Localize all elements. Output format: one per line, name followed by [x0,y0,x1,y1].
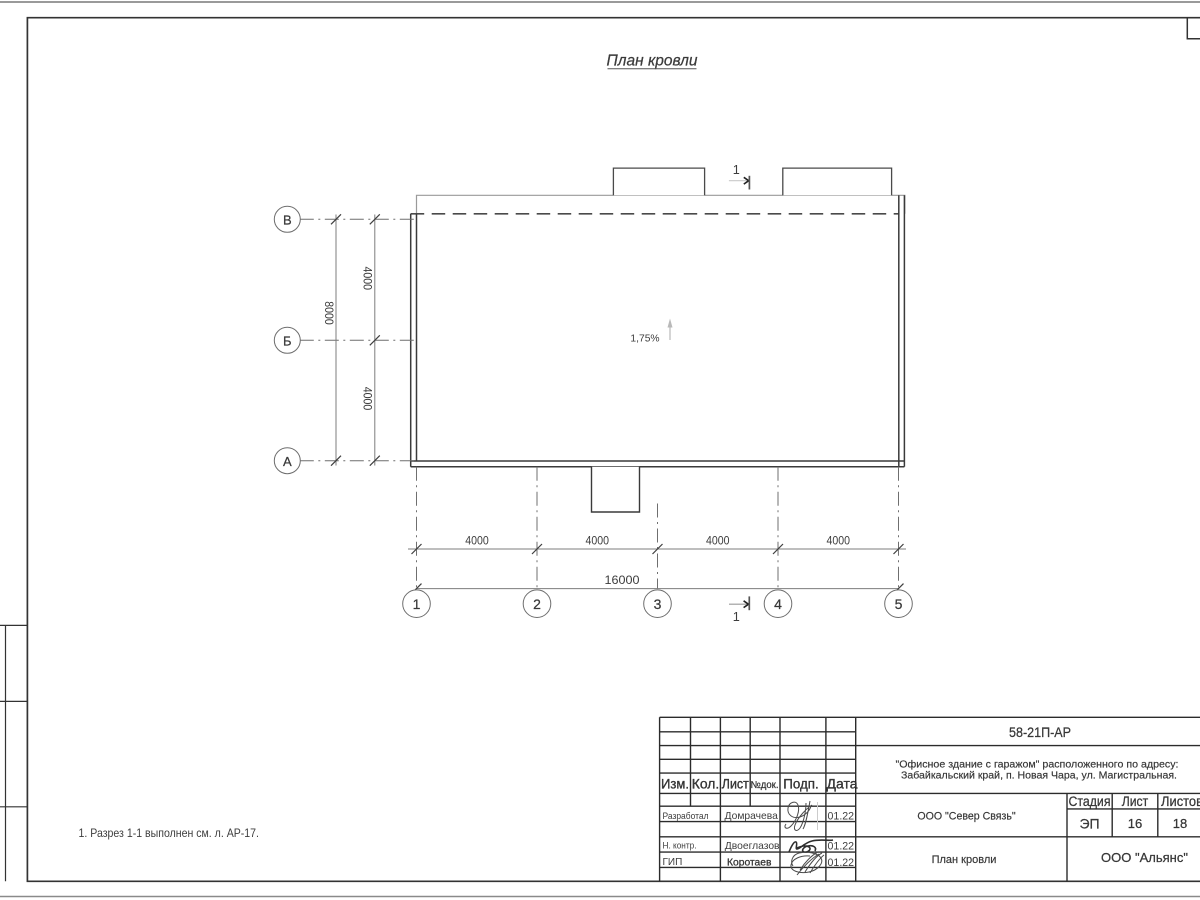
svg-text:1,75%: 1,75% [630,334,659,345]
svg-text:Н. контр.: Н. контр. [663,841,697,852]
svg-text:Лист: Лист [1122,794,1149,809]
svg-text:18: 18 [1173,816,1187,831]
svg-text:А: А [283,454,292,469]
svg-text:4000: 4000 [827,534,851,548]
svg-text:Изм.: Изм. [661,776,689,792]
svg-text:Разработал: Разработал [663,811,709,822]
svg-text:Коротаев: Коротаев [727,857,772,868]
svg-text:В: В [283,212,292,227]
svg-text:План кровли: План кровли [932,854,997,866]
svg-text:Подп.: Подп. [783,776,819,792]
svg-text:Б: Б [283,333,292,348]
svg-text:01.22: 01.22 [828,840,855,852]
svg-text:1: 1 [733,163,740,177]
svg-text:5: 5 [895,596,903,612]
svg-text:Дата: Дата [827,776,858,792]
svg-text:58-21П-АР: 58-21П-АР [1009,725,1071,740]
svg-text:Двоеглазов: Двоеглазов [725,841,780,852]
svg-text:16: 16 [1128,816,1142,831]
svg-text:1. Разрез 1-1 выполнен см. л.: 1. Разрез 1-1 выполнен см. л. АР-17. [79,827,260,840]
svg-text:16000: 16000 [605,573,640,587]
svg-text:4000: 4000 [360,267,374,291]
svg-text:01.22: 01.22 [828,811,855,823]
svg-text:4: 4 [774,596,782,612]
svg-text:ГИП: ГИП [663,857,683,868]
svg-text:Забайкальский край, п. Новая Ч: Забайкальский край, п. Новая Чара, ул. М… [901,770,1177,782]
svg-text:8000: 8000 [322,301,336,325]
svg-text:1: 1 [733,610,740,624]
svg-text:ООО "Альянс": ООО "Альянс" [1101,850,1188,865]
svg-text:3: 3 [654,596,662,612]
svg-text:Стадия: Стадия [1069,794,1111,809]
svg-text:2: 2 [533,596,541,612]
svg-text:4000: 4000 [360,387,374,411]
svg-text:4000: 4000 [706,534,730,548]
svg-text:4000: 4000 [586,534,610,548]
svg-text:№док.: №док. [751,780,779,791]
svg-text:01.22: 01.22 [828,857,855,869]
svg-text:"Офисное здание с гаражом" рас: "Офисное здание с гаражом" расположенног… [896,758,1179,770]
svg-text:План кровли: План кровли [607,53,698,70]
svg-text:Лист: Лист [722,776,750,792]
svg-text:Кол.: Кол. [692,776,720,792]
svg-text:1: 1 [413,596,421,612]
svg-text:Листов: Листов [1161,794,1200,809]
svg-text:ЭП: ЭП [1079,816,1099,832]
svg-text:ООО "Север Связь": ООО "Север Связь" [917,810,1015,822]
svg-text:4000: 4000 [465,534,489,548]
svg-text:Домрачева: Домрачева [725,811,779,822]
